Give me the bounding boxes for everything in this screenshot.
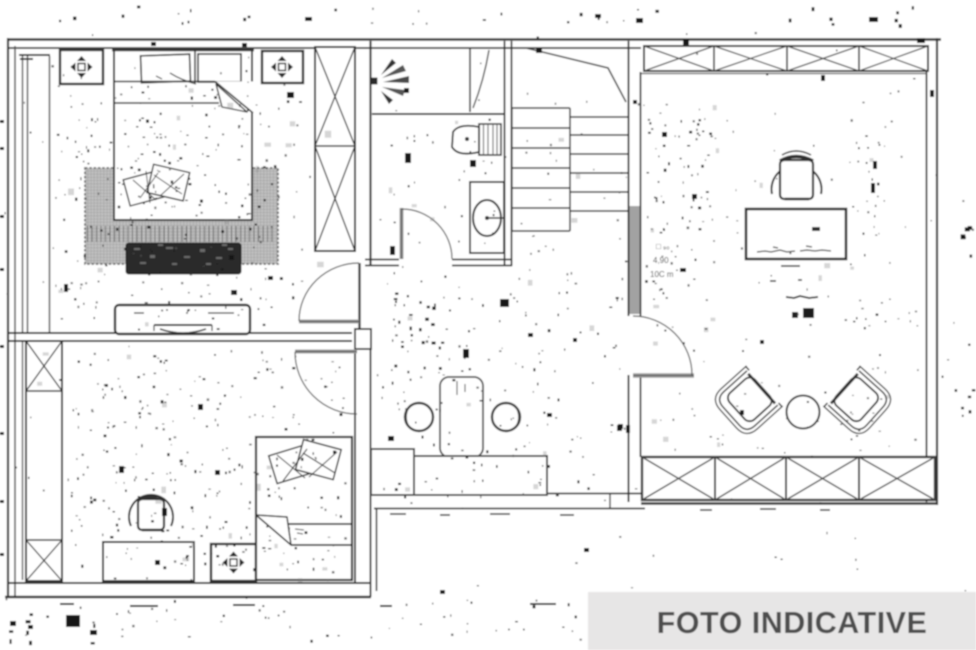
svg-text:10C m: 10C m: [650, 270, 674, 279]
svg-text:4,90: 4,90: [653, 256, 669, 265]
svg-text:□ ₉₀: □ ₉₀: [656, 242, 670, 251]
svg-text:FOTO INDICATIVE: FOTO INDICATIVE: [657, 606, 928, 640]
